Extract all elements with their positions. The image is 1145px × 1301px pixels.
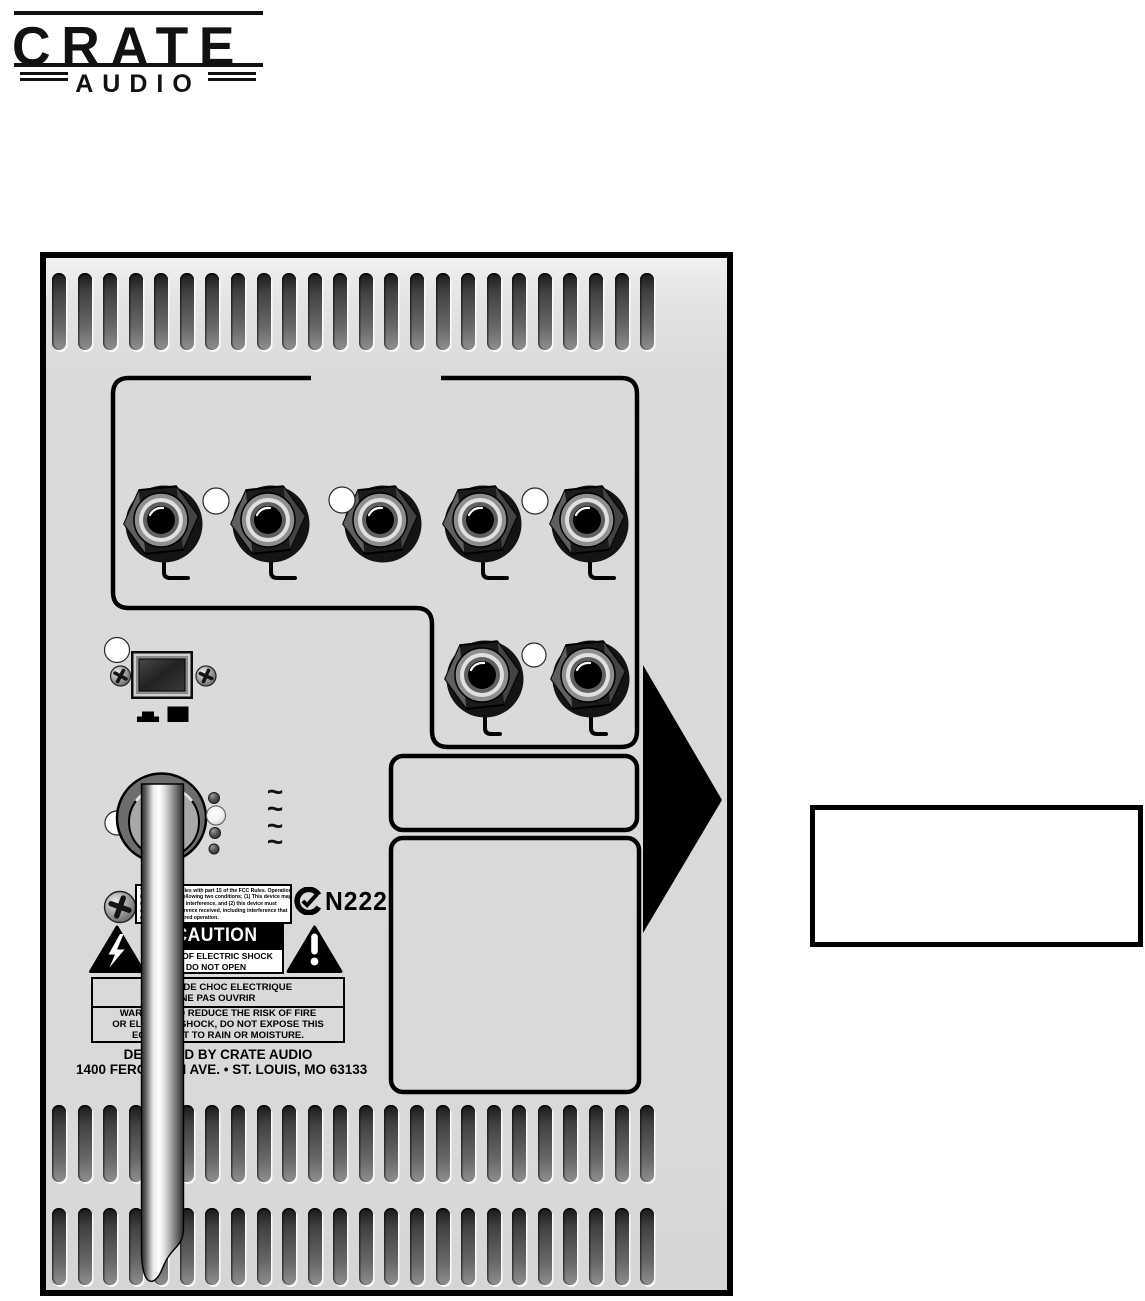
ac-tilde-symbol: ~ [260, 833, 290, 851]
fcc-line: accept any interference received, includ… [140, 908, 275, 915]
maker-line: DESIGNED BY CRATE AUDIO [91, 1047, 345, 1062]
fcc-line: may cause undesired operation. [140, 915, 275, 922]
caution-title: CAUTION [175, 925, 258, 947]
address-line: 1400 FERGUSON AVE. • ST. LOUIS, MO 63133 [76, 1062, 360, 1078]
french-line: NE PAS OUVRIR [93, 993, 343, 1004]
fcc-compliance-label: This device complies with part 15 of the… [135, 884, 292, 924]
ctick-mark: N222 [294, 886, 391, 916]
risk-label: RISK OF ELECTRIC SHOCK DO NOT OPEN [148, 948, 284, 974]
warning-line: EQUIPMENT TO RAIN OR MOISTURE. [93, 1031, 343, 1042]
risk-line: RISK OF ELECTRIC SHOCK [150, 951, 282, 962]
warning-line: OR ELECTRIC SHOCK, DO NOT EXPOSE THIS [93, 1020, 343, 1031]
warning-label-box: RISQUE DE CHOC ELECTRIQUE NE PAS OUVRIR … [91, 977, 345, 1043]
manual-page: CRATE AUDIO [0, 0, 1145, 1301]
caution-title-bar: CAUTION [148, 923, 284, 948]
fcc-line: not cause harmful interference, and (2) … [140, 901, 275, 908]
fcc-line: This device complies with part 15 of the… [140, 888, 275, 895]
english-warning: WARNING: TO REDUCE THE RISK OF FIRE OR E… [93, 1008, 343, 1042]
risk-line: DO NOT OPEN [150, 962, 282, 973]
ctick-icon [294, 887, 322, 915]
ctick-number: N222 [325, 886, 388, 917]
french-line: RISQUE DE CHOC ELECTRIQUE [93, 982, 343, 993]
fcc-line: is subject to the following two conditio… [140, 894, 275, 901]
french-warning: RISQUE DE CHOC ELECTRIQUE NE PAS OUVRIR [93, 979, 343, 1008]
